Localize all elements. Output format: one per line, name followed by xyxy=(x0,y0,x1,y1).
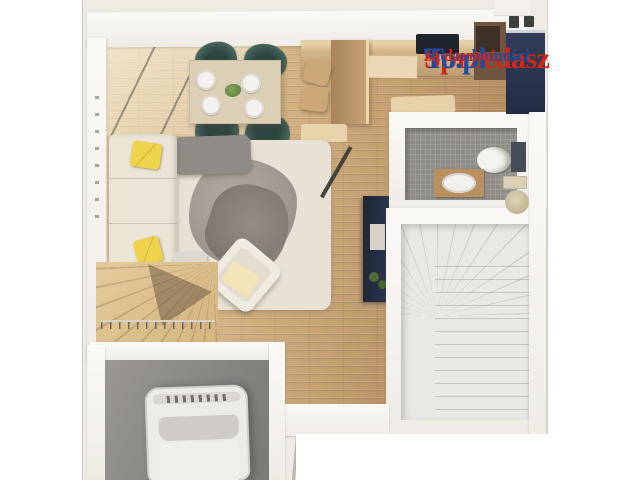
bottom-wall xyxy=(279,404,389,436)
garage-wall xyxy=(269,342,285,480)
car xyxy=(144,384,250,480)
car-roof xyxy=(159,441,240,480)
plate xyxy=(196,70,216,90)
roof-vent-icon xyxy=(509,16,519,28)
right-wall xyxy=(529,112,546,436)
kitchen-island xyxy=(331,40,369,124)
cabinet-plant xyxy=(369,272,379,282)
garage-wall xyxy=(87,345,105,480)
washing-machine xyxy=(505,190,529,214)
chimney xyxy=(494,0,531,15)
car-windshield xyxy=(158,415,239,442)
listing-image: SprzedaszTo.pl Nieruchomościza darmo! xyxy=(0,0,640,480)
foreground-cutaway xyxy=(296,434,549,480)
wood-staircase xyxy=(96,262,218,344)
sofa-pillow xyxy=(129,140,162,170)
stair-balusters xyxy=(101,322,215,329)
ottoman xyxy=(172,135,251,176)
plate xyxy=(241,73,261,93)
roof-vent-icon xyxy=(524,16,534,27)
vanity xyxy=(434,169,484,197)
bar-stool xyxy=(300,85,329,113)
wall-markings xyxy=(95,96,99,218)
sink-basin xyxy=(442,173,476,193)
plate xyxy=(201,95,221,115)
tagline-text-red: za darmo! xyxy=(424,48,496,65)
bathroom-cabinet xyxy=(511,142,526,172)
plate xyxy=(244,98,264,118)
stair-shadow xyxy=(148,264,212,326)
alcove-shelf xyxy=(503,176,527,189)
cabinet-shelf xyxy=(370,224,385,250)
straight-steps xyxy=(435,266,529,420)
garage-wall xyxy=(89,342,285,362)
countertop xyxy=(369,56,417,79)
